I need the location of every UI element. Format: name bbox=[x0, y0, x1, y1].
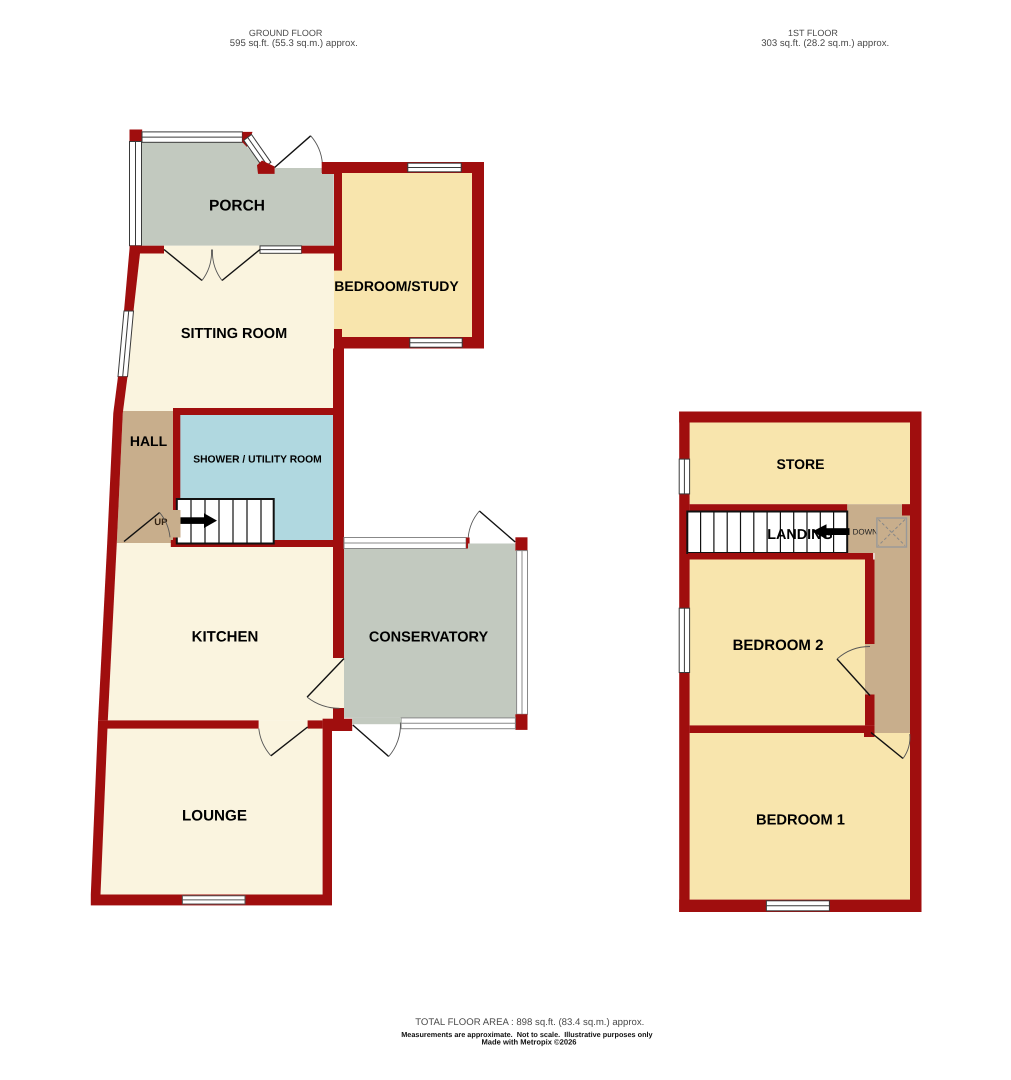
svg-text:TOTAL FLOOR AREA : 898 sq.ft.: TOTAL FLOOR AREA : 898 sq.ft. (83.4 sq.m… bbox=[415, 1017, 644, 1028]
svg-text:303 sq.ft. (28.2 sq.m.) approx: 303 sq.ft. (28.2 sq.m.) approx. bbox=[761, 38, 889, 49]
svg-text:SITTING ROOM: SITTING ROOM bbox=[181, 326, 287, 342]
svg-text:BEDROOM/STUDY: BEDROOM/STUDY bbox=[334, 278, 459, 294]
svg-text:BEDROOM 2: BEDROOM 2 bbox=[733, 637, 824, 654]
svg-text:HALL: HALL bbox=[130, 433, 168, 449]
svg-text:SHOWER / UTILITY ROOM: SHOWER / UTILITY ROOM bbox=[193, 455, 322, 466]
svg-text:BEDROOM 1: BEDROOM 1 bbox=[756, 812, 845, 828]
svg-text:595 sq.ft. (55.3 sq.m.) approx: 595 sq.ft. (55.3 sq.m.) approx. bbox=[230, 38, 358, 49]
svg-text:KITCHEN: KITCHEN bbox=[192, 629, 259, 646]
svg-text:LOUNGE: LOUNGE bbox=[182, 808, 247, 825]
svg-text:STORE: STORE bbox=[777, 456, 825, 472]
svg-text:1ST FLOOR: 1ST FLOOR bbox=[788, 28, 838, 38]
svg-text:DOWN: DOWN bbox=[853, 527, 879, 536]
svg-text:GROUND FLOOR: GROUND FLOOR bbox=[249, 28, 323, 38]
svg-text:Made with Metropix ©2026: Made with Metropix ©2026 bbox=[481, 1038, 576, 1047]
svg-text:CONSERVATORY: CONSERVATORY bbox=[369, 630, 489, 646]
svg-text:PORCH: PORCH bbox=[209, 198, 265, 215]
